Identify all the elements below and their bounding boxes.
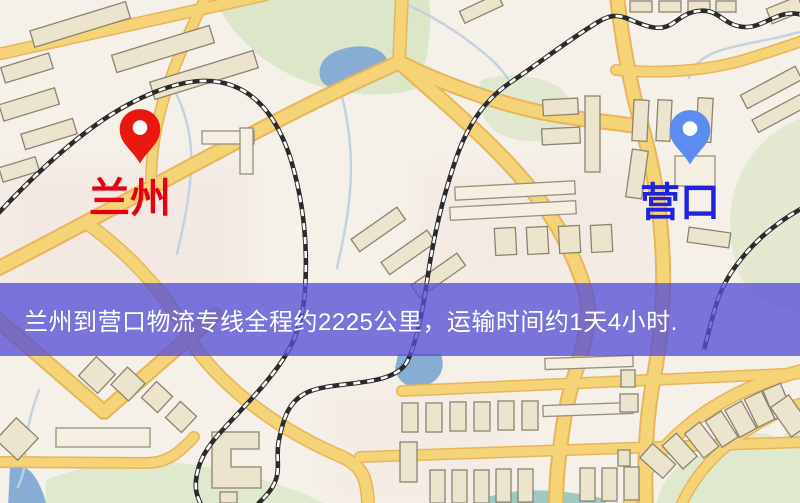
origin-pin-icon [117,101,163,171]
route-banner: 兰州到营口物流专线全程约2225公里，运输时间约1天4小时. [0,283,800,356]
map-canvas: 兰州 营口 兰州到营口物流专线全程约2225公里，运输时间约1天4小时. [0,0,800,503]
destination-pin-icon [667,107,713,167]
origin-label: 兰州 [89,178,171,219]
map-background [0,0,800,503]
destination-label: 营口 [640,183,720,223]
route-banner-text: 兰州到营口物流专线全程约2225公里，运输时间约1天4小时. [0,302,678,337]
